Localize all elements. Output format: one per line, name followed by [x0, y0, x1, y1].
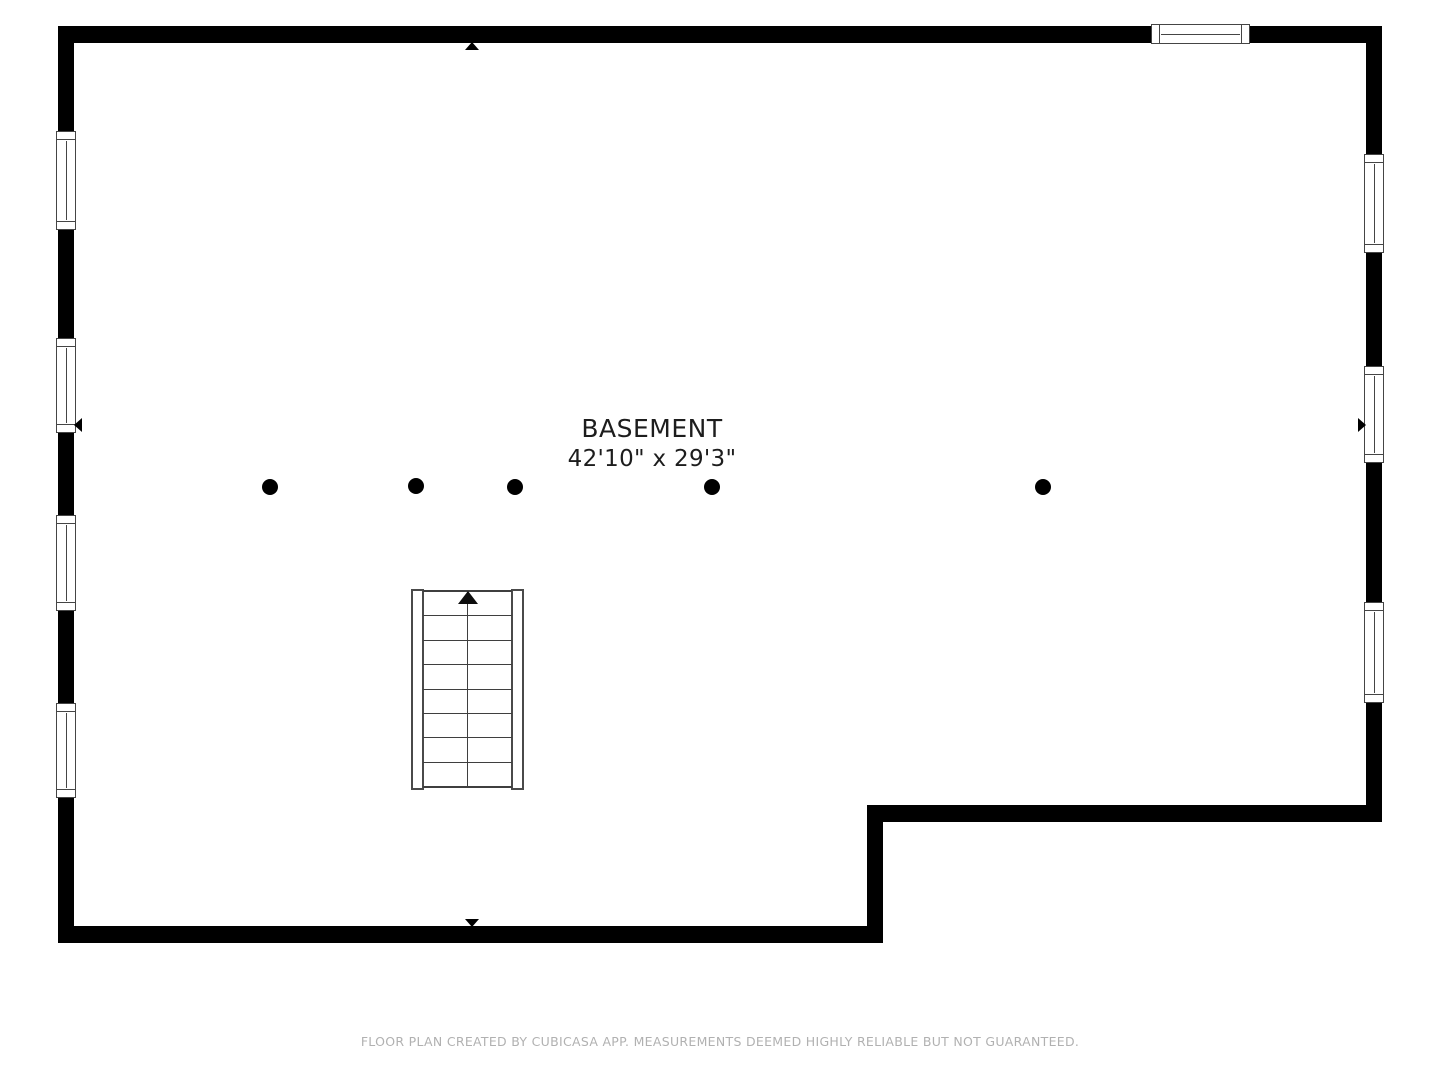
footer-disclaimer: FLOOR PLAN CREATED BY CUBICASA APP. MEAS… [0, 1034, 1440, 1049]
support-column-dot [408, 478, 424, 494]
window-frame-line [57, 139, 75, 140]
window-glass-line [1374, 612, 1375, 693]
window-right-1 [1364, 154, 1384, 253]
wall-bottom-right-section [867, 805, 1382, 822]
window-frame-line [57, 523, 75, 524]
down-arrow-icon [465, 919, 479, 927]
support-column-dot [1035, 479, 1051, 495]
window-frame-line [57, 789, 75, 790]
wall-step [867, 805, 883, 943]
window-glass-line [66, 525, 67, 601]
room-dimensions-label: 42'10" x 29'3" [452, 444, 852, 475]
window-glass-line [1374, 164, 1375, 243]
window-frame-line [1365, 244, 1383, 245]
up-arrow-icon [465, 42, 479, 50]
window-frame-line [1159, 25, 1160, 43]
window-frame-line [57, 221, 75, 222]
window-right-3 [1364, 602, 1384, 703]
room-label-block: BASEMENT 42'10" x 29'3" [452, 413, 852, 475]
window-glass-line [66, 348, 67, 423]
floor-plan: BASEMENT 42'10" x 29'3" FLOOR PLAN CREAT… [0, 0, 1440, 1080]
up-arrow-icon [458, 591, 478, 604]
right-arrow-icon [1358, 418, 1366, 432]
support-column-dot [704, 479, 720, 495]
stair-center-line [467, 591, 468, 787]
wall-bottom-left-section [58, 926, 883, 943]
window-frame-line [57, 346, 75, 347]
window-left-2 [56, 338, 76, 433]
window-glass-line [66, 141, 67, 220]
window-top-1 [1151, 24, 1250, 44]
window-left-3 [56, 515, 76, 611]
window-left-4 [56, 703, 76, 798]
window-frame-line [1365, 610, 1383, 611]
window-glass-line [1374, 376, 1375, 453]
left-arrow-icon [74, 418, 82, 432]
support-column-dot [262, 479, 278, 495]
window-frame-line [1365, 694, 1383, 695]
window-frame-line [1365, 162, 1383, 163]
stair-stringer-right [511, 589, 524, 790]
support-column-dot [507, 479, 523, 495]
window-glass-line [66, 713, 67, 788]
window-frame-line [1365, 374, 1383, 375]
window-frame-line [1241, 25, 1242, 43]
window-left-1 [56, 131, 76, 230]
window-frame-line [57, 711, 75, 712]
room-name-label: BASEMENT [452, 413, 852, 444]
window-glass-line [1161, 34, 1240, 35]
window-right-2 [1364, 366, 1384, 463]
window-frame-line [1365, 454, 1383, 455]
window-frame-line [57, 424, 75, 425]
window-frame-line [57, 602, 75, 603]
